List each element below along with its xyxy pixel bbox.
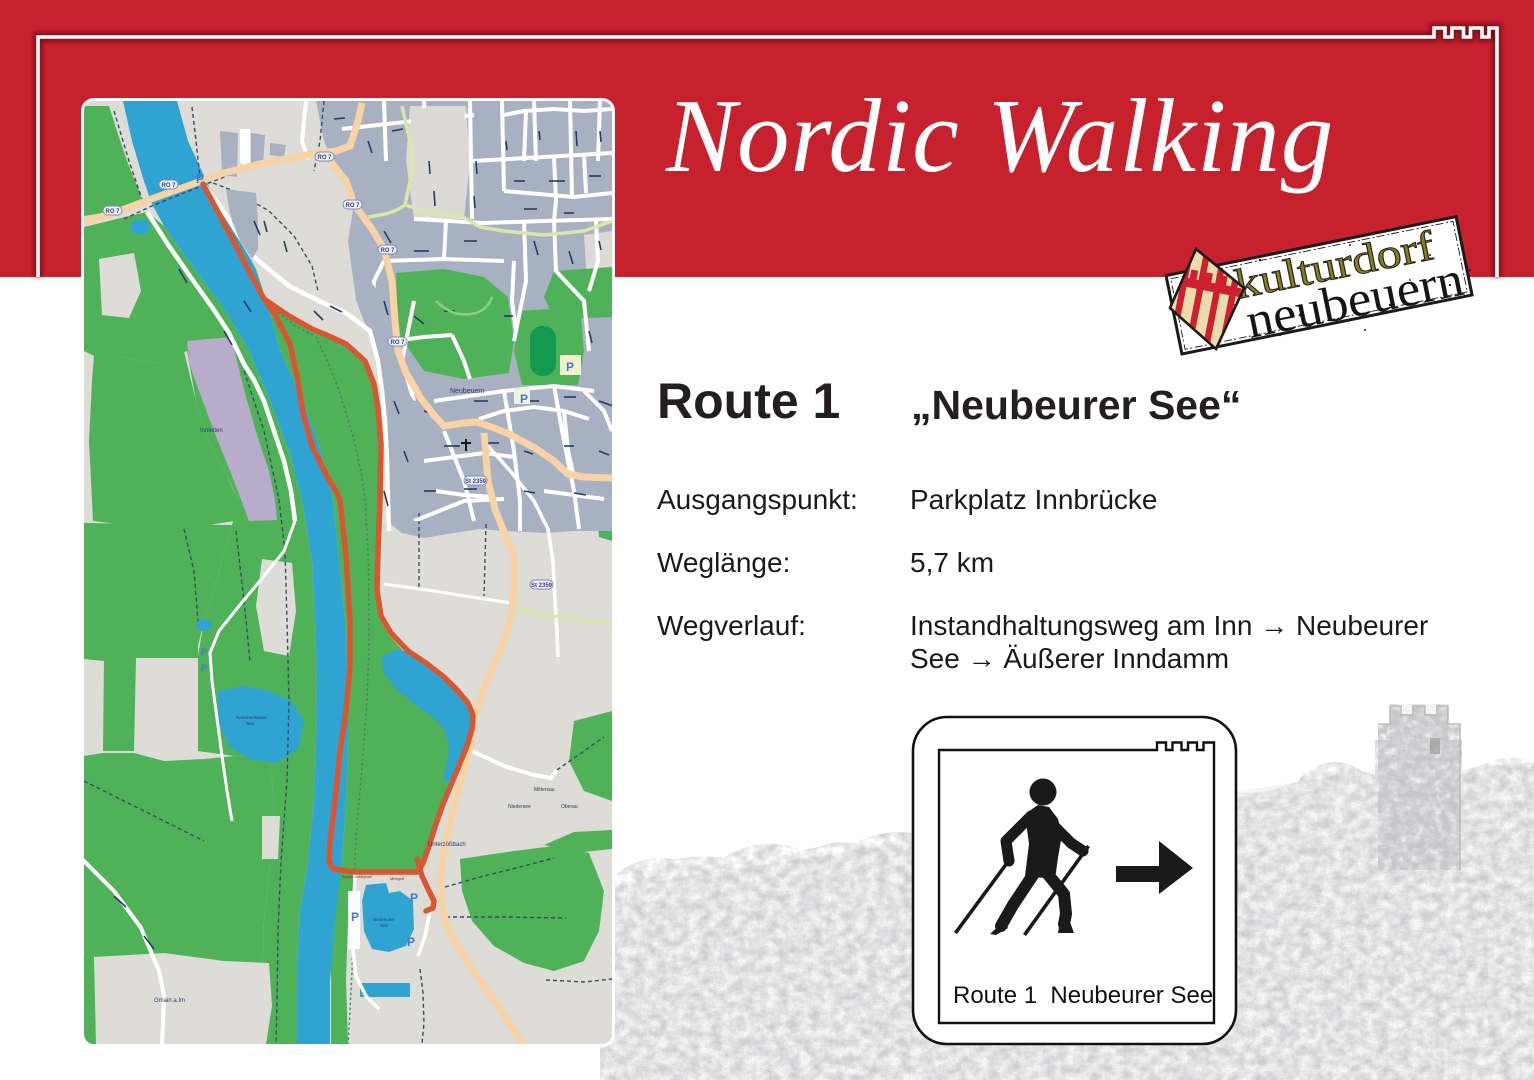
svg-text:RO 7: RO 7 [317,155,332,161]
svg-text:Beach-Volleyball: Beach-Volleyball [342,874,372,879]
svg-text:Oberau: Oberau [561,804,578,810]
svg-text:See: See [246,721,255,726]
svg-text:P: P [410,891,418,905]
svg-text:P: P [520,392,528,406]
svg-text:RO 7: RO 7 [345,203,360,209]
svg-text:Neubeuern: Neubeuern [450,388,485,395]
svg-text:Minigolf: Minigolf [390,876,405,881]
svg-text:P: P [407,935,415,949]
svg-text:P: P [351,910,359,924]
svg-text:Niedersee: Niedersee [508,804,531,810]
svg-text:P: P [201,647,207,657]
svg-text:Mittersau: Mittersau [534,787,555,793]
svg-text:RO 7: RO 7 [105,209,120,215]
svg-text:P: P [196,172,204,186]
svg-text:St 2359: St 2359 [465,479,487,485]
svg-text:Route 1 Neubeurer See: Route 1 Neubeurer See [953,982,1213,1009]
svg-text:Reischenharter: Reischenharter [236,715,267,720]
svg-text:RO 7: RO 7 [161,183,176,189]
svg-text:Innleiten: Innleiten [200,428,223,434]
svg-text:St 2359: St 2359 [531,583,553,589]
svg-text:P: P [566,360,574,374]
svg-text:See: See [380,923,389,928]
svg-text:Gmain a.Im: Gmain a.Im [154,998,185,1004]
svg-text:Unterzößbach: Unterzößbach [428,842,466,848]
svg-text:RO 7: RO 7 [380,248,395,254]
svg-text:RO 7: RO 7 [390,340,405,346]
svg-text:P: P [201,663,207,673]
svg-text:Neubeurer: Neubeurer [373,917,395,922]
